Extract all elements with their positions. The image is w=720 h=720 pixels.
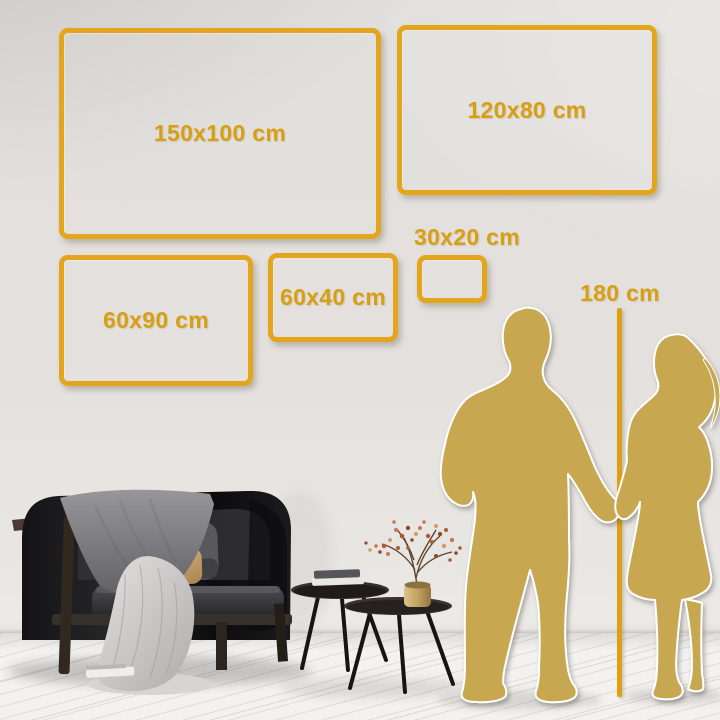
woman-silhouette-back-leg [685, 599, 703, 691]
man-silhouette [441, 308, 620, 703]
couple-silhouettes [0, 0, 720, 720]
wall-art-size-guide: 150x100 cm 120x80 cm 60x90 cm 60x40 cm 3… [0, 0, 720, 720]
